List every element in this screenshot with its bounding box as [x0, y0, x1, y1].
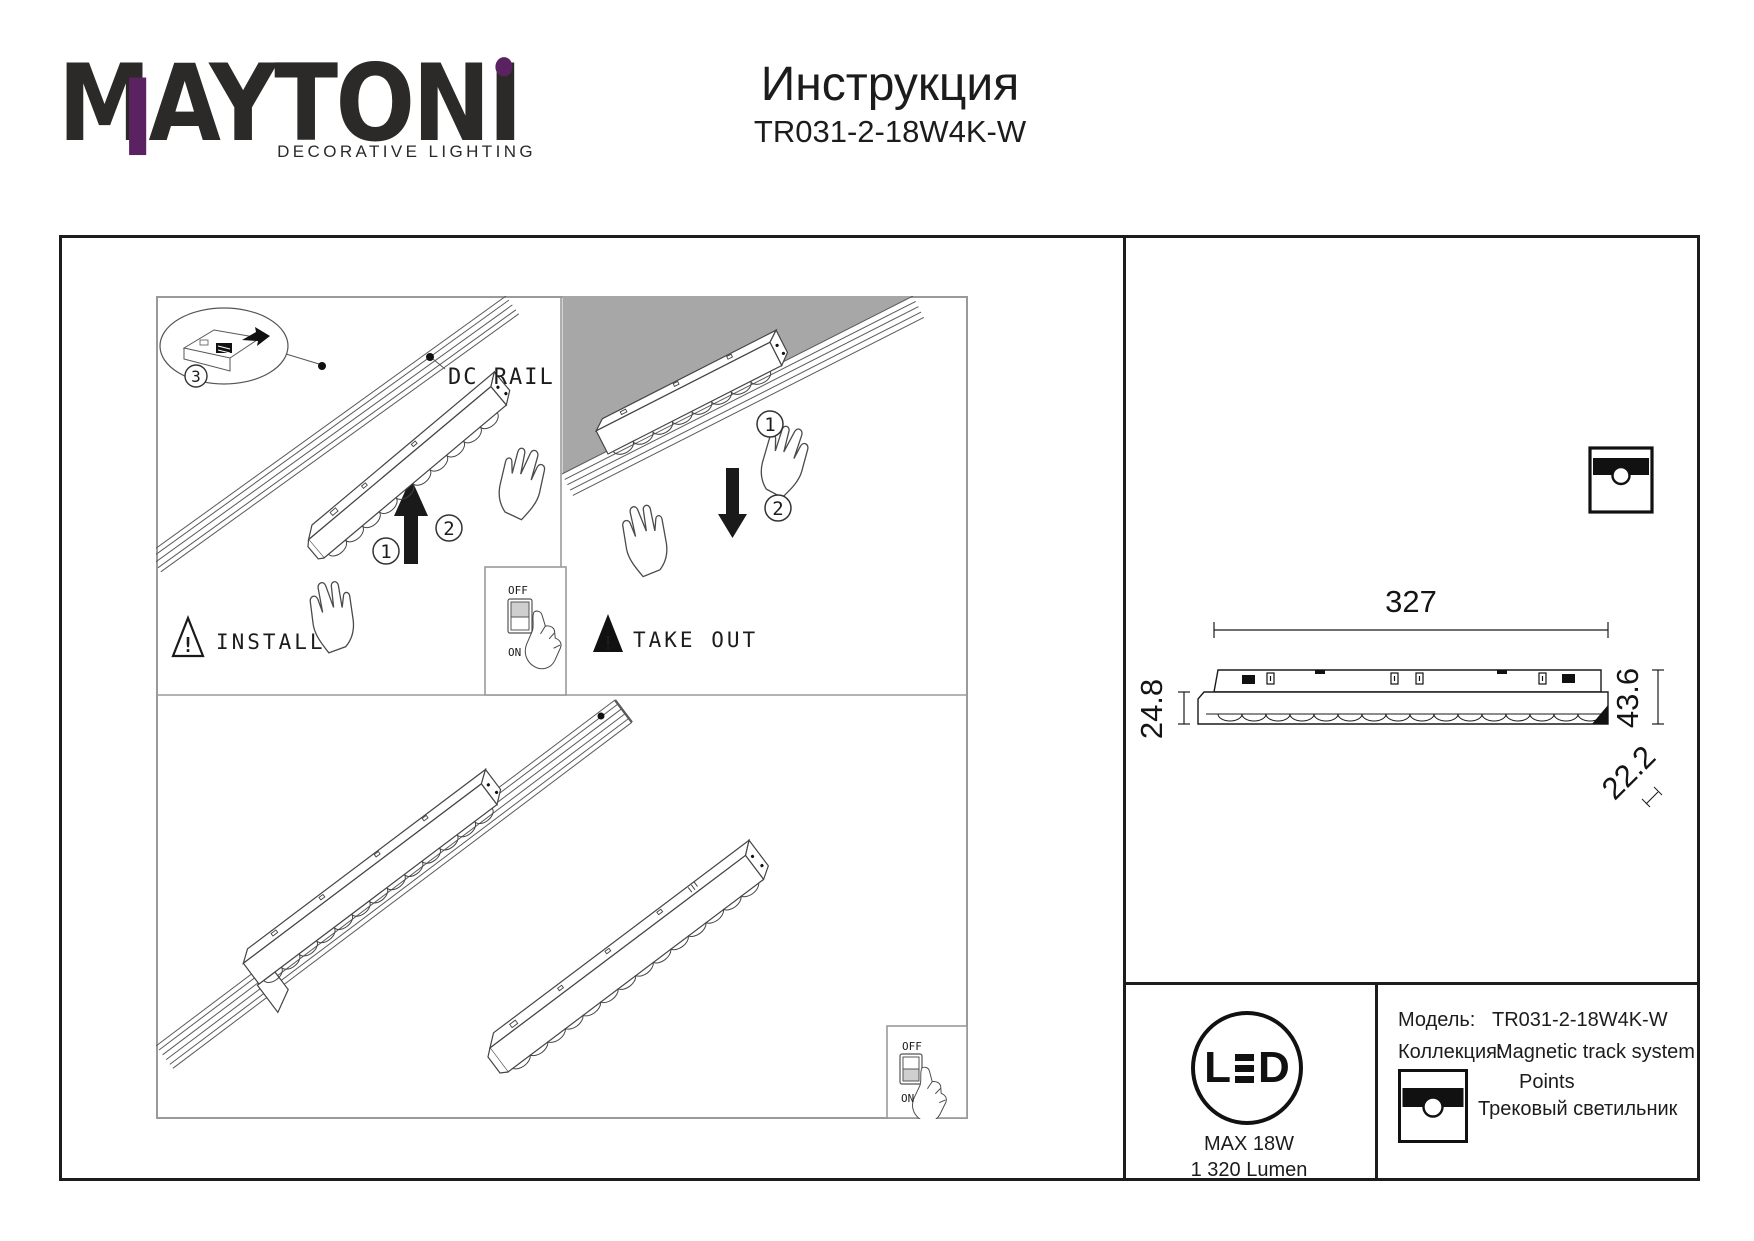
led-logo-icon: L D: [1191, 1011, 1303, 1125]
mounted-fixture-result: [236, 769, 527, 1012]
takeout-step-2-badge: 2: [772, 498, 783, 520]
install-step-2-badge: 2: [443, 518, 454, 540]
install-warning-mark: !: [182, 633, 194, 657]
dim-width: 22.2: [1595, 739, 1662, 806]
model-info-cell: Модель: TR031-2-18W4K-W Коллекция: Magne…: [1375, 985, 1700, 1181]
max-power: MAX 18W: [1123, 1133, 1375, 1156]
connector-callout: 3: [160, 308, 326, 387]
dc-rail-label: DC RAIL: [448, 365, 555, 390]
switch2-off-label: OFF: [902, 1040, 922, 1053]
led-letter-d: D: [1258, 1046, 1290, 1090]
collection-name: Points: [1519, 1071, 1575, 1094]
brand-logo: MAYTONI DECORATIVE LIGHTING: [58, 50, 536, 162]
product-pictogram-icon: [1588, 446, 1654, 514]
dimension-drawing: 327 24.8 43.6 22.2: [1140, 558, 1700, 828]
model-label: Модель:: [1398, 1009, 1475, 1032]
led-letter-l: L: [1204, 1046, 1231, 1090]
switch-off-label: OFF: [508, 584, 528, 597]
left-hand-2: [612, 498, 679, 578]
product-type: Трековый светильник: [1478, 1098, 1677, 1121]
collection-label: Коллекция:: [1398, 1041, 1503, 1064]
rail-callout-dot: [426, 353, 434, 361]
take-out-label: TAKE OUT: [633, 628, 758, 652]
rail-end-dot: [598, 713, 605, 720]
logo-purple-dot-icon: [495, 57, 512, 76]
dim-length: 327: [1385, 584, 1437, 619]
brand-wordmark-text: MAYTONI: [58, 41, 520, 165]
model-value: TR031-2-18W4K-W: [1492, 1009, 1668, 1032]
step-3-badge: 3: [191, 367, 201, 386]
power-switch-box-on: OFF ON: [887, 1026, 967, 1119]
switch-on-label: ON: [508, 646, 521, 659]
install-label: INSTALL: [216, 630, 326, 654]
right-hand: [486, 441, 556, 522]
led-letter-e-bars: [1235, 1054, 1254, 1083]
led-cell: L D MAX 18W 1 320 Lumen: [1123, 985, 1375, 1181]
dim-height-total: 43.6: [1610, 668, 1645, 728]
product-pictogram-small-icon: [1398, 1069, 1468, 1143]
brand-wordmark: MAYTONI: [58, 50, 488, 156]
dim-height-body: 24.8: [1140, 679, 1169, 739]
fixture-lower-body: [1198, 692, 1608, 724]
take-out-panel: 1 2 !: [562, 296, 924, 654]
down-arrow-icon: [718, 468, 747, 538]
install-step-1-badge: 1: [380, 541, 391, 563]
takeout-step-1-badge: 1: [764, 414, 775, 436]
switch2-on-label: ON: [901, 1092, 914, 1105]
page-model-number: TR031-2-18W4K-W: [640, 114, 1140, 150]
spec-table: L D MAX 18W 1 320 Lumen Модель: TR031-2-…: [1123, 982, 1700, 1181]
takeout-warning-mark: !: [603, 633, 614, 654]
power-switch-box-off: OFF ON: [485, 567, 566, 695]
header-title-block: Инструкция TR031-2-18W4K-W: [640, 60, 1140, 150]
detached-fixture: [478, 840, 776, 1080]
page-title: Инструкция: [640, 60, 1140, 110]
installation-figure: 3 2 1 ! DC RAIL I: [156, 296, 968, 1119]
logo-purple-stem: [129, 78, 146, 156]
result-panel: [156, 700, 776, 1080]
luminous-flux: 1 320 Lumen: [1123, 1159, 1375, 1182]
collection-value: Magnetic track system: [1496, 1041, 1695, 1064]
